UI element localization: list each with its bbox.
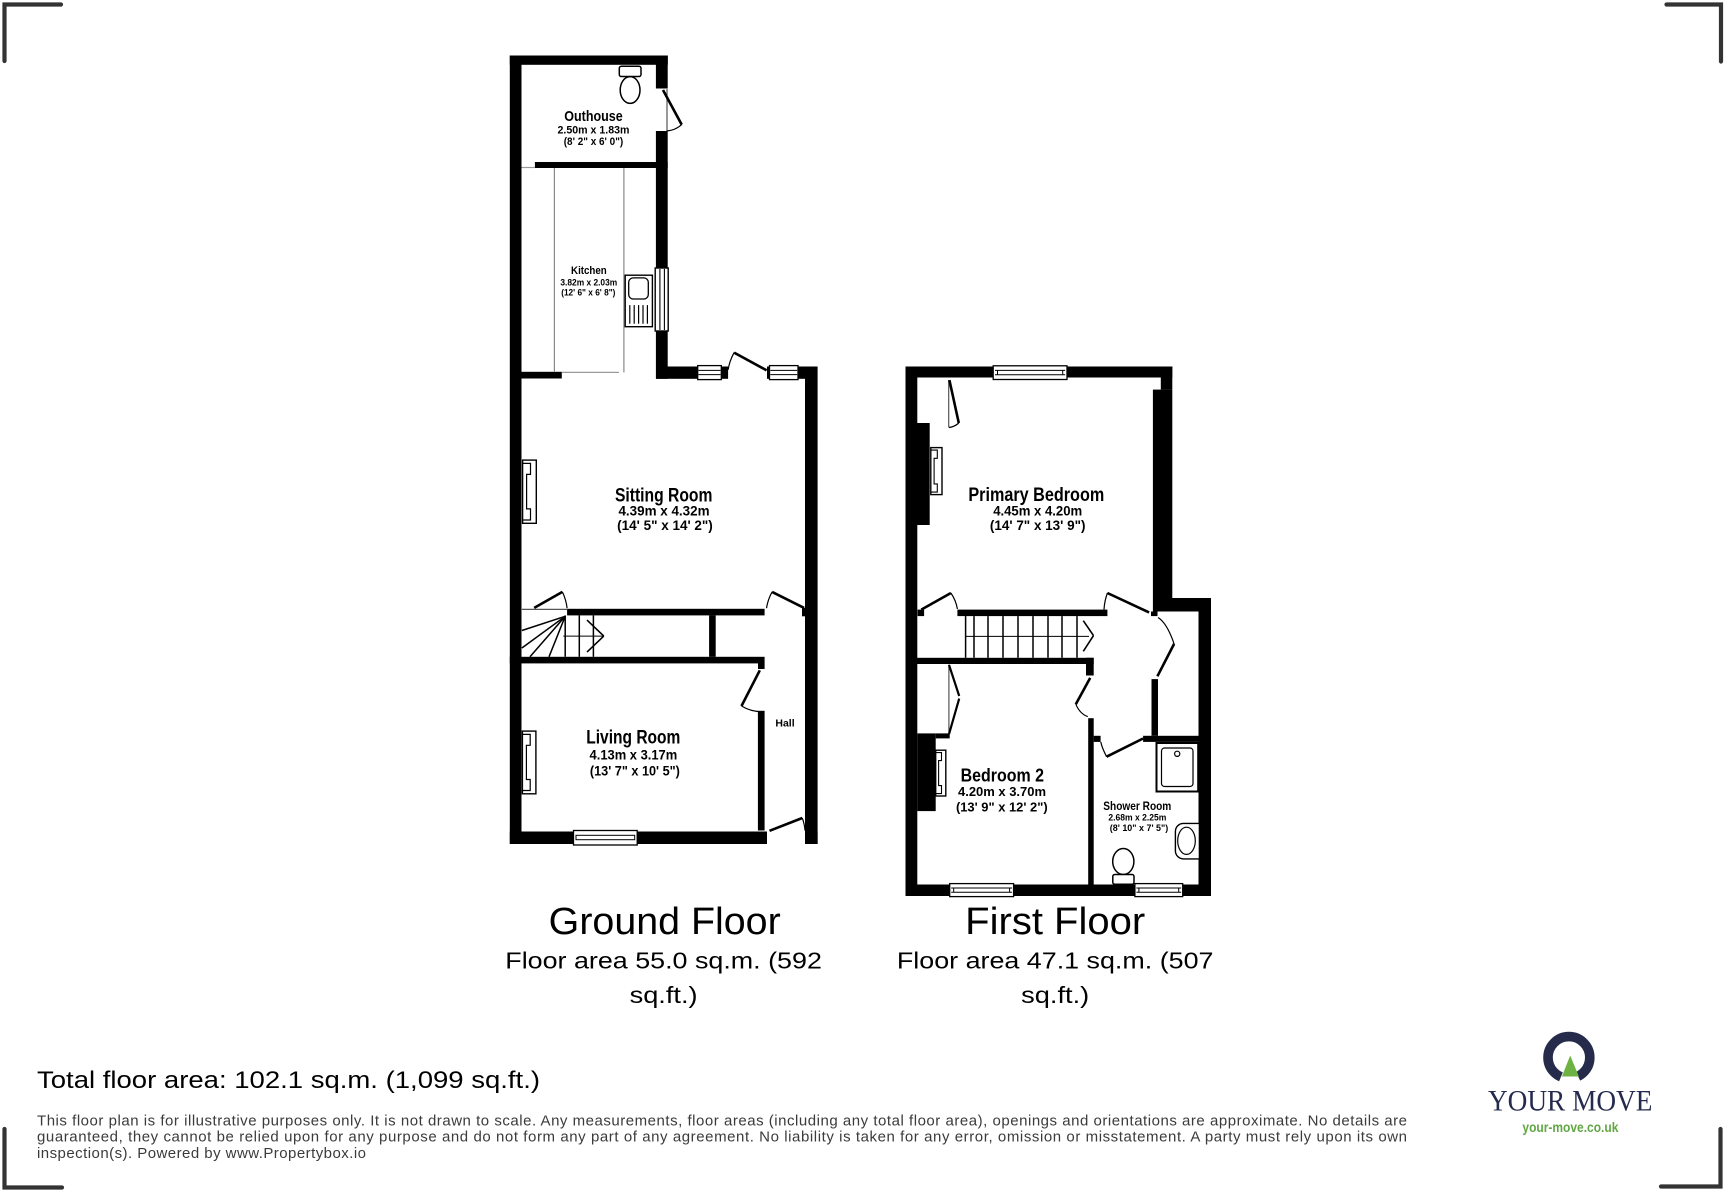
svg-text:guaranteed, they cannot be rel: guaranteed, they cannot be relied upon f… [37, 1129, 1407, 1146]
svg-text:Bedroom 2: Bedroom 2 [961, 765, 1044, 786]
svg-text:4.45m x 4.20m: 4.45m x 4.20m [993, 504, 1082, 519]
svg-text:Total floor area: 102.1 sq.m.: Total floor area: 102.1 sq.m. (1,099 sq.… [37, 1067, 540, 1094]
svg-text:YOUR MOVE: YOUR MOVE [1488, 1085, 1653, 1118]
svg-text:(12' 6" x 6' 8"): (12' 6" x 6' 8") [561, 288, 615, 298]
svg-text:Floor area 47.1 sq.m. (507: Floor area 47.1 sq.m. (507 [897, 948, 1214, 974]
svg-text:4.39m x 4.32m: 4.39m x 4.32m [618, 504, 709, 519]
svg-text:Ground Floor: Ground Floor [549, 901, 781, 943]
svg-text:(14' 5" x 14' 2"): (14' 5" x 14' 2") [617, 518, 713, 533]
svg-text:(14' 7" x 13' 9"): (14' 7" x 13' 9") [990, 518, 1086, 533]
svg-text:First Floor: First Floor [965, 901, 1145, 943]
svg-text:Kitchen: Kitchen [571, 265, 607, 277]
svg-text:inspection(s). Powered by www.: inspection(s). Powered by www.Propertybo… [37, 1145, 366, 1162]
svg-text:(13' 9" x 12' 2"): (13' 9" x 12' 2") [956, 800, 1048, 815]
svg-text:Living Room: Living Room [586, 726, 680, 748]
svg-text:4.20m x 3.70m: 4.20m x 3.70m [958, 784, 1046, 799]
svg-text:Shower Room: Shower Room [1103, 801, 1171, 813]
svg-text:2.68m x 2.25m: 2.68m x 2.25m [1108, 813, 1166, 823]
svg-text:(8' 10" x 7' 5"): (8' 10" x 7' 5") [1110, 823, 1169, 833]
svg-text:sq.ft.): sq.ft.) [630, 982, 698, 1008]
svg-text:your-move.co.uk: your-move.co.uk [1522, 1119, 1618, 1135]
svg-text:(13' 7" x 10' 5"): (13' 7" x 10' 5") [590, 763, 680, 778]
svg-text:Floor area 55.0 sq.m. (592: Floor area 55.0 sq.m. (592 [505, 948, 822, 974]
svg-text:This floor plan is for illustr: This floor plan is for illustrative purp… [37, 1113, 1407, 1130]
svg-text:sq.ft.): sq.ft.) [1021, 982, 1089, 1008]
svg-text:4.13m x 3.17m: 4.13m x 3.17m [590, 747, 678, 762]
svg-text:Outhouse: Outhouse [564, 108, 622, 125]
svg-text:Hall: Hall [775, 717, 794, 729]
svg-text:2.50m x 1.83m: 2.50m x 1.83m [558, 125, 630, 137]
svg-text:3.82m x 2.03m: 3.82m x 2.03m [560, 278, 617, 288]
svg-text:(8' 2" x 6' 0"): (8' 2" x 6' 0") [564, 136, 624, 148]
